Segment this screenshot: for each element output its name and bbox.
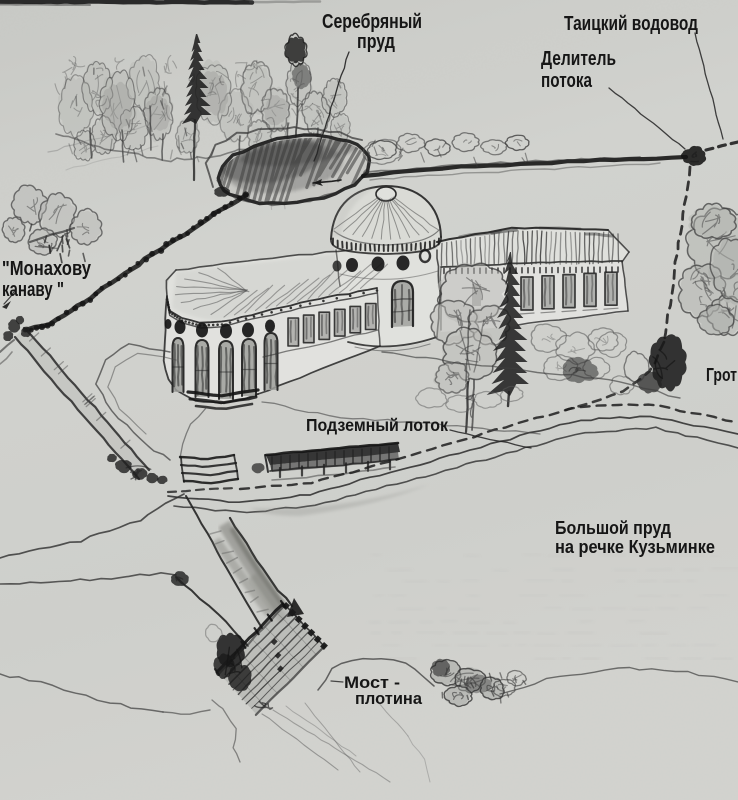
svg-text:плотина: плотина <box>355 689 423 708</box>
svg-text:на речке Кузьминке: на речке Кузьминке <box>555 537 715 557</box>
svg-text:пруд: пруд <box>357 31 395 53</box>
svg-text:Грот: Грот <box>706 365 737 385</box>
svg-text:потока: потока <box>541 70 593 92</box>
svg-text:Делитель: Делитель <box>541 48 616 70</box>
svg-text:Серебряный: Серебряный <box>322 11 422 33</box>
svg-text:Большой пруд: Большой пруд <box>555 518 672 538</box>
svg-text:в "Монахову: в "Монахову <box>0 258 92 280</box>
svg-text:Таицкий водовод: Таицкий водовод <box>564 13 698 35</box>
svg-text:канаву ": канаву " <box>2 279 64 301</box>
svg-text:Подземный лоток: Подземный лоток <box>306 415 448 435</box>
